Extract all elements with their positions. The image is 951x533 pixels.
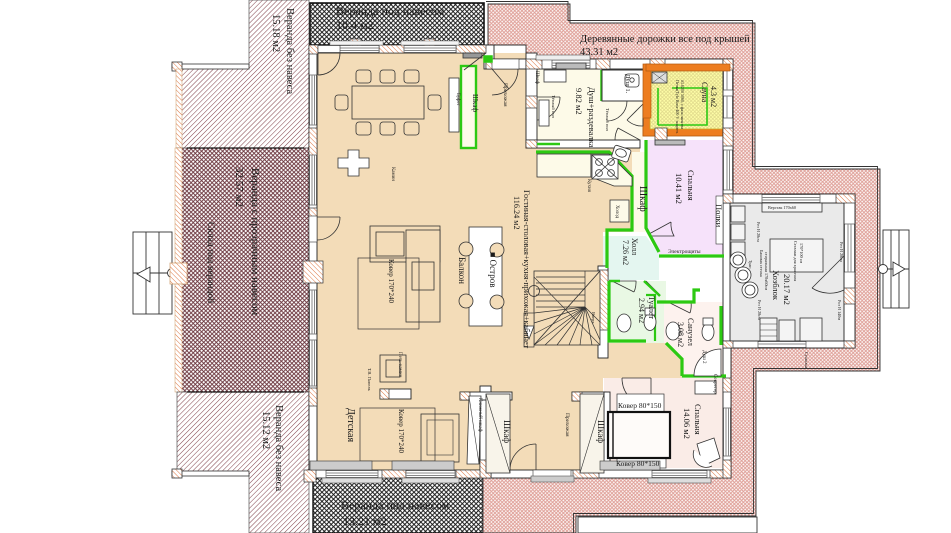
svg-text:43.31 м2: 43.31 м2 <box>580 47 618 58</box>
svg-text:Веранда без навеса: Веранда без навеса <box>273 405 284 491</box>
svg-text:Верстак 170х60: Верстак 170х60 <box>768 205 796 210</box>
svg-text:Трап: Трап <box>748 260 753 269</box>
svg-text:Хозблок: Хозблок <box>771 270 781 301</box>
svg-text:Душ+раздевалка: Душ+раздевалка <box>587 87 597 148</box>
svg-text:14.06 м2: 14.06 м2 <box>682 408 692 439</box>
svg-text:Шкаф: Шкаф <box>596 420 606 443</box>
svg-text:Холл: Холл <box>630 238 639 255</box>
svg-text:32.57 м2: 32.57 м2 <box>233 167 245 207</box>
svg-text:Склад под верандой: Склад под верандой <box>205 222 216 303</box>
svg-text:Электрощиты: Электрощиты <box>668 249 701 255</box>
svg-text:Веранда под навесом: Веранда под навесом <box>336 4 445 18</box>
svg-text:Печка(Tylo Вига-400 V защитн.: Печка(Tylo Вига-400 V защитн. <box>675 80 680 134</box>
svg-text:Рез Н 20см: Рез Н 20см <box>756 222 761 242</box>
svg-text:Ковер 170*240: Ковер 170*240 <box>397 409 405 453</box>
svg-text:Кухня: Кухня <box>586 179 591 193</box>
svg-text:Гостиная-столовая+кухня-прихож: Гостиная-столовая+кухня-прихожая+кабинет <box>522 190 531 349</box>
svg-text:9.82 м2: 9.82 м2 <box>574 88 584 115</box>
svg-text:Ковер 170*240: Ковер 170*240 <box>387 259 395 303</box>
svg-text:4.3 м2: 4.3 м2 <box>709 86 718 107</box>
svg-text:Камин: Камин <box>390 167 395 181</box>
svg-text:7.26 м2: 7.26 м2 <box>621 240 630 265</box>
svg-text:2.94 м2: 2.94 м2 <box>637 298 646 323</box>
svg-text:Буфет: Буфет <box>455 93 460 107</box>
svg-text:Сауна: Сауна <box>700 82 709 103</box>
svg-text:Холод: Холод <box>614 205 619 219</box>
svg-text:Ковер 80*150: Ковер 80*150 <box>616 459 660 468</box>
svg-text:Тёплый пол: Тёплый пол <box>551 95 556 119</box>
svg-text:Рез Н 20см: Рез Н 20см <box>757 300 762 320</box>
svg-text:15.18 м2: 15.18 м2 <box>270 14 281 52</box>
svg-text:Спальня: Спальня <box>693 404 703 435</box>
svg-text:■ Остров: ■ Остров <box>488 252 498 287</box>
svg-text:Душ 1.: Душ 1. <box>624 74 631 94</box>
svg-text:Шкаф: Шкаф <box>502 420 512 443</box>
svg-text:Секретер: Секретер <box>712 374 717 394</box>
svg-text:3.08 м2: 3.08 м2 <box>676 322 685 347</box>
svg-text:стиральная 170х60см: стиральная 170х60см <box>764 252 769 290</box>
svg-text:170*100 см: 170*100 см <box>799 243 804 264</box>
svg-text:Веранда под навесом: Веранда под навесом <box>341 498 450 512</box>
svg-text:Шкаф: Шкаф <box>471 94 479 112</box>
svg-text:10.4 м2: 10.4 м2 <box>336 18 374 32</box>
svg-text:Т.В. Панель: Т.В. Панель <box>367 368 372 391</box>
svg-text:Балкон: Балкон <box>457 257 467 284</box>
svg-text:Роз Н 140м: Роз Н 140м <box>837 300 842 320</box>
svg-text:13.21 м2: 13.21 м2 <box>343 514 387 528</box>
svg-text:Веранда без навеса: Веранда без навеса <box>284 8 295 94</box>
svg-text:20.17 м2: 20.17 м2 <box>782 274 792 305</box>
svg-text:116.24 м2: 116.24 м2 <box>512 196 521 230</box>
svg-text:Деревянные дорожки все под кры: Деревянные дорожки все под крышей <box>580 34 750 45</box>
svg-text:Санузел: Санузел <box>686 318 695 346</box>
svg-text:Душ 2: Душ 2 <box>701 350 706 364</box>
svg-text:Рез Н 20см: Рез Н 20см <box>839 242 844 262</box>
svg-text:Книжный шкаф: Книжный шкаф <box>477 398 482 433</box>
svg-text:10.41 м2: 10.41 м2 <box>674 173 684 204</box>
svg-text:Стеллаж для хранения: Стеллаж для хранения <box>793 241 798 281</box>
svg-text:Башмак стенка: Башмак стенка <box>759 250 764 277</box>
svg-text:Туалет: Туалет <box>647 296 656 320</box>
svg-text:Прихожая: Прихожая <box>502 83 508 107</box>
svg-text:Печь-камин: Печь-камин <box>397 352 402 378</box>
svg-text:Спальня: Спальня <box>686 170 696 201</box>
svg-text:Ковер 80*150: Ковер 80*150 <box>618 401 662 410</box>
svg-text:Шкаф: Шкаф <box>637 186 648 212</box>
svg-text:Детская: Детская <box>345 408 356 442</box>
svg-text:Веранда с прозрачным навесом: Веранда с прозрачным навесом <box>249 168 261 315</box>
svg-text:Вверх: Вверх <box>591 312 596 324</box>
svg-text:Шкаф: Шкаф <box>534 71 539 85</box>
svg-text:Тёплый пол: Тёплый пол <box>605 108 610 132</box>
svg-text:Прихожая: Прихожая <box>564 413 570 437</box>
svg-text:Сушилка: Сушилка <box>804 352 809 368</box>
svg-text:Полки: Полки <box>714 204 724 228</box>
svg-text:15.12 м2: 15.12 м2 <box>260 411 271 449</box>
